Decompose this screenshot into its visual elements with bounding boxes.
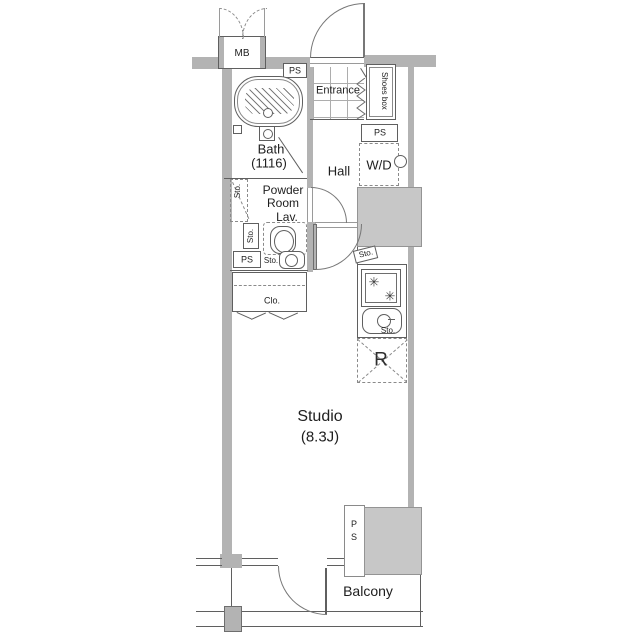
closet-bifold-1b <box>251 312 266 319</box>
studio-size-label: (8.3J) <box>301 430 339 445</box>
closet <box>232 272 307 312</box>
meter-box-door-arc-left <box>219 8 244 39</box>
entrance-threshold-inner <box>310 63 364 64</box>
tall-storage-label: Sto. <box>234 184 242 198</box>
meter-box-label: MB <box>235 49 250 59</box>
pipe-space-top-label: PS <box>289 67 301 76</box>
meter-box-door-leaf-left <box>219 8 220 38</box>
wall-top-left-stub <box>192 57 220 69</box>
balcony-left-divider <box>231 568 232 608</box>
meter-box-wall-right <box>260 37 265 68</box>
entrance-step-line <box>310 119 364 120</box>
kitchen-faucet-spout <box>388 319 395 320</box>
balcony-door-arc <box>278 566 327 615</box>
window-line-left-1 <box>196 558 222 559</box>
washer-dryer-label: W/D <box>366 159 391 172</box>
wall-meter-circle <box>394 155 407 168</box>
shoes-box-label: Shoes box <box>376 72 388 110</box>
pipe-space-left-label: PS <box>241 256 253 265</box>
window-line-mid-1 <box>242 558 278 559</box>
window-line-mid-2 <box>242 565 278 566</box>
wash-basin-faucet <box>285 254 298 267</box>
pipe-shaft-block <box>357 187 422 247</box>
structural-pillar <box>364 507 422 575</box>
bath-size-label: (1116) <box>251 157 287 170</box>
window-line-left-2 <box>196 565 222 566</box>
balcony-right-edge <box>420 575 421 627</box>
bathtub <box>234 76 303 127</box>
kitchen-storage-sink-label: Sto. <box>381 327 395 335</box>
closet-bifold-2b <box>283 312 298 319</box>
toilet-seat <box>274 230 294 253</box>
basin-storage-label: Sto. <box>264 257 278 265</box>
wall-right <box>408 56 414 510</box>
pipe-space-laundry-label: PS <box>374 129 386 138</box>
powder-room-label-1: Powder <box>263 184 304 196</box>
closet-shelf-line <box>234 285 305 286</box>
meter-box-wall-left <box>219 37 224 68</box>
powder-doorway-line-1 <box>307 188 308 222</box>
closet-bifold-2a <box>269 312 284 319</box>
wall-bottom-column <box>220 554 242 568</box>
bath-label: Bath <box>258 143 285 156</box>
studio-label: Studio <box>297 409 342 425</box>
fridge-label: R <box>374 351 388 370</box>
closet-bifold-1a <box>237 312 252 319</box>
closet-label: Clo. <box>264 297 280 306</box>
bathtub-drain-circle <box>263 108 273 118</box>
floorplan-canvas: MB PS Entrance Shoes box PS W/D Bath (11… <box>0 0 640 639</box>
powder-door-arc <box>311 187 347 223</box>
mid-storage-label: Sto. <box>247 229 255 243</box>
burner-icon: ✳ <box>385 290 396 303</box>
entrance-door-arc <box>310 3 365 58</box>
bath-faucet-circle <box>263 129 273 139</box>
hall-label: Hall <box>328 165 350 178</box>
balcony-drain-box <box>224 606 242 632</box>
powder-room-label-2: Room <box>267 197 299 209</box>
powder-south-line <box>230 270 308 271</box>
bath-counter-box <box>233 125 242 134</box>
wall-left <box>222 69 232 568</box>
shoes-box-accordion-icon <box>356 78 367 119</box>
pipe-space-shaft-label: PS <box>349 519 358 545</box>
balcony-label: Balcony <box>343 584 393 598</box>
entrance-label: Entrance <box>316 86 360 97</box>
meter-box-door-leaf-right <box>264 8 265 38</box>
burner-icon: ✳ <box>369 276 380 289</box>
